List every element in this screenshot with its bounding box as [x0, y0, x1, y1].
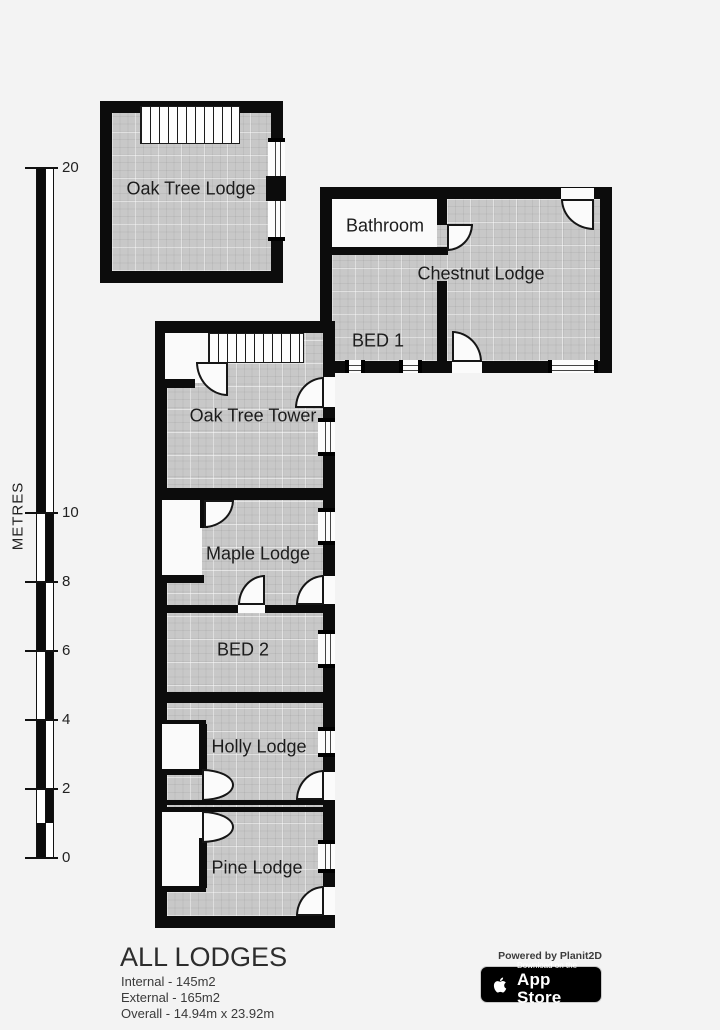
wall-bed1-right — [437, 281, 447, 361]
ruler-segment — [37, 169, 45, 513]
door-opening — [323, 887, 335, 915]
ruler-unit-label: METRES — [10, 482, 27, 551]
summary-overall: Overall - 14.94m x 23.92m — [121, 1006, 274, 1021]
wall-bathroom-right — [437, 199, 447, 225]
ruler-tick — [25, 719, 58, 721]
alcove-holly — [162, 724, 204, 771]
badge-title: App Store — [517, 971, 592, 1007]
stairs-icon — [140, 106, 240, 144]
door-opening — [323, 377, 335, 407]
ruler-segment — [37, 720, 45, 789]
plan-title: ALL LODGES — [120, 942, 287, 973]
alcove-pine — [162, 812, 204, 888]
ruler-tick — [25, 857, 58, 859]
ruler-segment — [46, 789, 53, 823]
ruler-segment — [46, 513, 53, 582]
powered-by-label: Powered by Planit2D — [495, 950, 605, 962]
window — [345, 360, 365, 373]
ruler-segment — [37, 823, 45, 857]
wall-holly-pine-upper — [167, 800, 323, 805]
window — [548, 360, 598, 373]
wall-vestibule-bottom — [165, 379, 195, 388]
ruler-tick — [25, 167, 58, 169]
ruler-segment — [37, 582, 45, 651]
door-opening — [238, 605, 265, 613]
ruler-tick-label: 4 — [62, 711, 70, 729]
ruler-tick-label: 10 — [62, 504, 79, 522]
door-opening — [452, 362, 482, 373]
ruler-tick-label: 6 — [62, 642, 70, 660]
window — [399, 360, 422, 373]
alcove-maple — [162, 500, 202, 577]
window — [318, 630, 335, 668]
apple-logo-icon — [490, 973, 510, 997]
ruler-tick — [25, 788, 58, 790]
door-opening — [323, 772, 335, 800]
wall-alcove-stub — [199, 724, 207, 773]
ruler-tick — [25, 650, 58, 652]
wall-alcove-bottom — [162, 575, 204, 583]
room-label-oak-tree-lodge: Oak Tree Lodge — [126, 179, 255, 200]
ruler-tick-label: 2 — [62, 780, 70, 798]
ruler-tick — [25, 581, 58, 583]
window-mullion — [266, 176, 286, 201]
room-label-oak-tree-tower: Oak Tree Tower — [190, 406, 317, 427]
wall-bed2-holly — [167, 692, 323, 703]
room-label-bathroom: Bathroom — [346, 216, 424, 237]
room-label-chestnut-lodge: Chestnut Lodge — [417, 264, 544, 285]
wall-alcove-bottom — [162, 886, 206, 892]
window — [318, 418, 335, 456]
room-label-bed1: BED 1 — [352, 331, 404, 352]
window — [318, 508, 335, 545]
summary-internal: Internal - 145m2 — [121, 974, 216, 989]
door-opening — [323, 576, 335, 604]
room-label-maple-lodge: Maple Lodge — [206, 544, 310, 565]
badge-text: Download on the App Store — [517, 962, 592, 1006]
room-label-pine-lodge: Pine Lodge — [211, 858, 302, 879]
floorplan-canvas: 20 10 8 6 4 2 0 METRES Oak Tree Lodge — [0, 0, 720, 1030]
app-store-badge[interactable]: Download on the App Store — [480, 966, 602, 1003]
window — [318, 727, 335, 757]
wall-alcove-bottom — [162, 769, 206, 775]
stairs-icon — [208, 333, 304, 363]
summary-external: External - 165m2 — [121, 990, 220, 1005]
door-opening — [561, 188, 594, 199]
ruler-tick — [25, 512, 58, 514]
wall-alcove-stub — [199, 838, 207, 888]
ruler-segment — [46, 651, 53, 720]
room-label-bed2: BED 2 — [217, 640, 269, 661]
window — [318, 840, 335, 873]
wall-bathroom-bottom — [320, 247, 448, 255]
ruler-tick-label: 0 — [62, 849, 70, 867]
wall-tower-maple — [167, 488, 323, 500]
ruler-tick-label: 20 — [62, 159, 79, 177]
ruler-tick-label: 8 — [62, 573, 70, 591]
room-label-holly-lodge: Holly Lodge — [211, 737, 306, 758]
